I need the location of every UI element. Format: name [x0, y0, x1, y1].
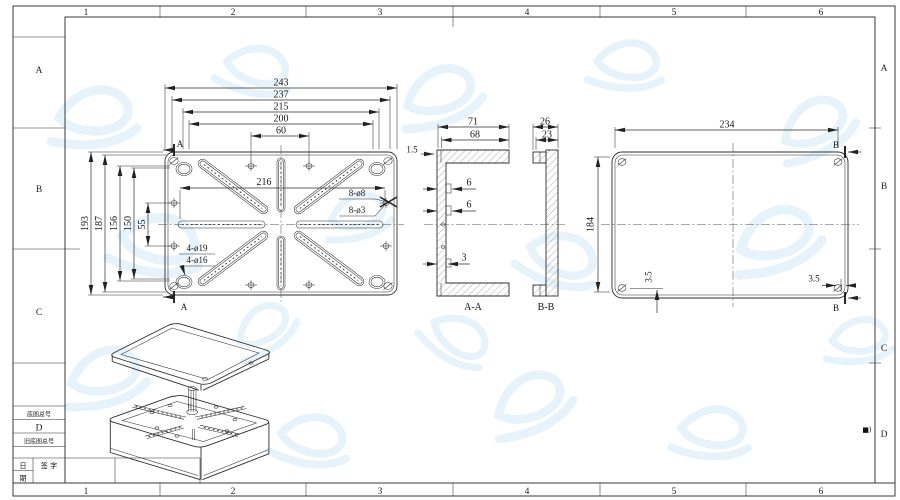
dim-193: 193	[80, 216, 91, 231]
dim-243: 243	[274, 78, 289, 89]
grid-col-label: 4	[525, 487, 530, 497]
rib-slots	[178, 157, 383, 290]
dim-150: 150	[123, 216, 134, 231]
dim-60: 60	[276, 126, 286, 137]
sheet-size-code: D	[36, 424, 43, 434]
grid-row-label: B	[881, 182, 887, 192]
dim-55: 55	[137, 220, 148, 230]
dim-3-5: 3.5	[644, 271, 654, 283]
screw-offset-right: 3.5	[808, 274, 854, 293]
iso-box-base	[110, 395, 269, 479]
grid-col-label: 3	[378, 487, 383, 497]
grid-col-label: 1	[84, 487, 89, 497]
date-label: 期	[20, 475, 27, 483]
watermark	[51, 37, 892, 473]
dim-234: 234	[720, 120, 735, 131]
dim-187: 187	[94, 216, 105, 231]
grid-row-label: D	[881, 430, 888, 440]
signature-label: 签 字	[41, 461, 57, 470]
grid-row-label: A	[36, 66, 43, 76]
dim-215: 215	[274, 102, 289, 113]
screw-offset-left: 3.5	[630, 271, 663, 313]
grid-row-label: C	[881, 344, 887, 354]
grid-row-label: B	[36, 185, 42, 195]
grid-row-label: C	[36, 308, 42, 318]
dim-71: 71	[468, 117, 478, 128]
section-aa-title: A-A	[464, 302, 483, 313]
back-view: 234 184 B B 3.5 3.5	[586, 120, 862, 314]
lip-dim: 1.5	[406, 145, 434, 155]
section-bb-title: B-B	[538, 302, 555, 313]
section-aa-view: 71 68 6 6 3 A-A	[423, 117, 521, 314]
dim-26: 26	[540, 117, 550, 128]
grid-col-label: 1	[84, 8, 89, 18]
grid-col-label: 5	[672, 8, 677, 18]
grid-col-label: 2	[231, 8, 236, 18]
dim-3: 3	[462, 253, 467, 264]
section-letter-b: B	[833, 140, 839, 150]
grid-col-label: 2	[231, 487, 236, 497]
dim-156: 156	[109, 216, 120, 231]
dim-200: 200	[274, 114, 289, 125]
dim-68: 68	[470, 130, 480, 141]
plan-view: 243 237 215 200 60 193 187 156 150 55	[80, 78, 434, 313]
iso-screw-column	[187, 387, 198, 415]
grid-row-label: A	[881, 64, 888, 74]
dim-23: 23	[542, 130, 552, 141]
label-8-o8: 8-ø8	[349, 188, 366, 198]
grid-col-label: 6	[819, 487, 824, 497]
dim-216: 216	[257, 177, 272, 188]
date-label: 日	[20, 462, 27, 470]
base-drawing-no-label: 底图总号	[27, 411, 51, 419]
dim-184: 184	[586, 217, 597, 232]
section-letter-a: A	[181, 302, 188, 312]
dim-1-5: 1.5	[406, 145, 418, 155]
section-letter-b: B	[833, 303, 839, 313]
section-letter-a: A	[177, 139, 184, 149]
dim-237: 237	[274, 90, 289, 101]
grid-col-label: 5	[672, 487, 677, 497]
label-4-o19: 4-ø19	[187, 243, 208, 253]
grid-col-label: 3	[378, 8, 383, 18]
dim-6: 6	[467, 200, 472, 211]
grid-col-label: 6	[819, 8, 824, 18]
drawing-sheet: 1 2 3 4 5 6 1 2 3 4 5 6 A B C A B C D ■)	[0, 0, 900, 500]
label-4-o16: 4-ø16	[187, 255, 208, 265]
corner-mark: ■)	[862, 426, 872, 434]
section-b-markers: B B	[833, 140, 861, 313]
label-8-o3: 8-ø3	[349, 205, 366, 215]
old-base-drawing-no-label: 旧底图总号	[24, 438, 54, 446]
grid-col-label: 4	[525, 8, 530, 18]
dim-3-5: 3.5	[808, 274, 820, 284]
dim-6: 6	[467, 178, 472, 189]
